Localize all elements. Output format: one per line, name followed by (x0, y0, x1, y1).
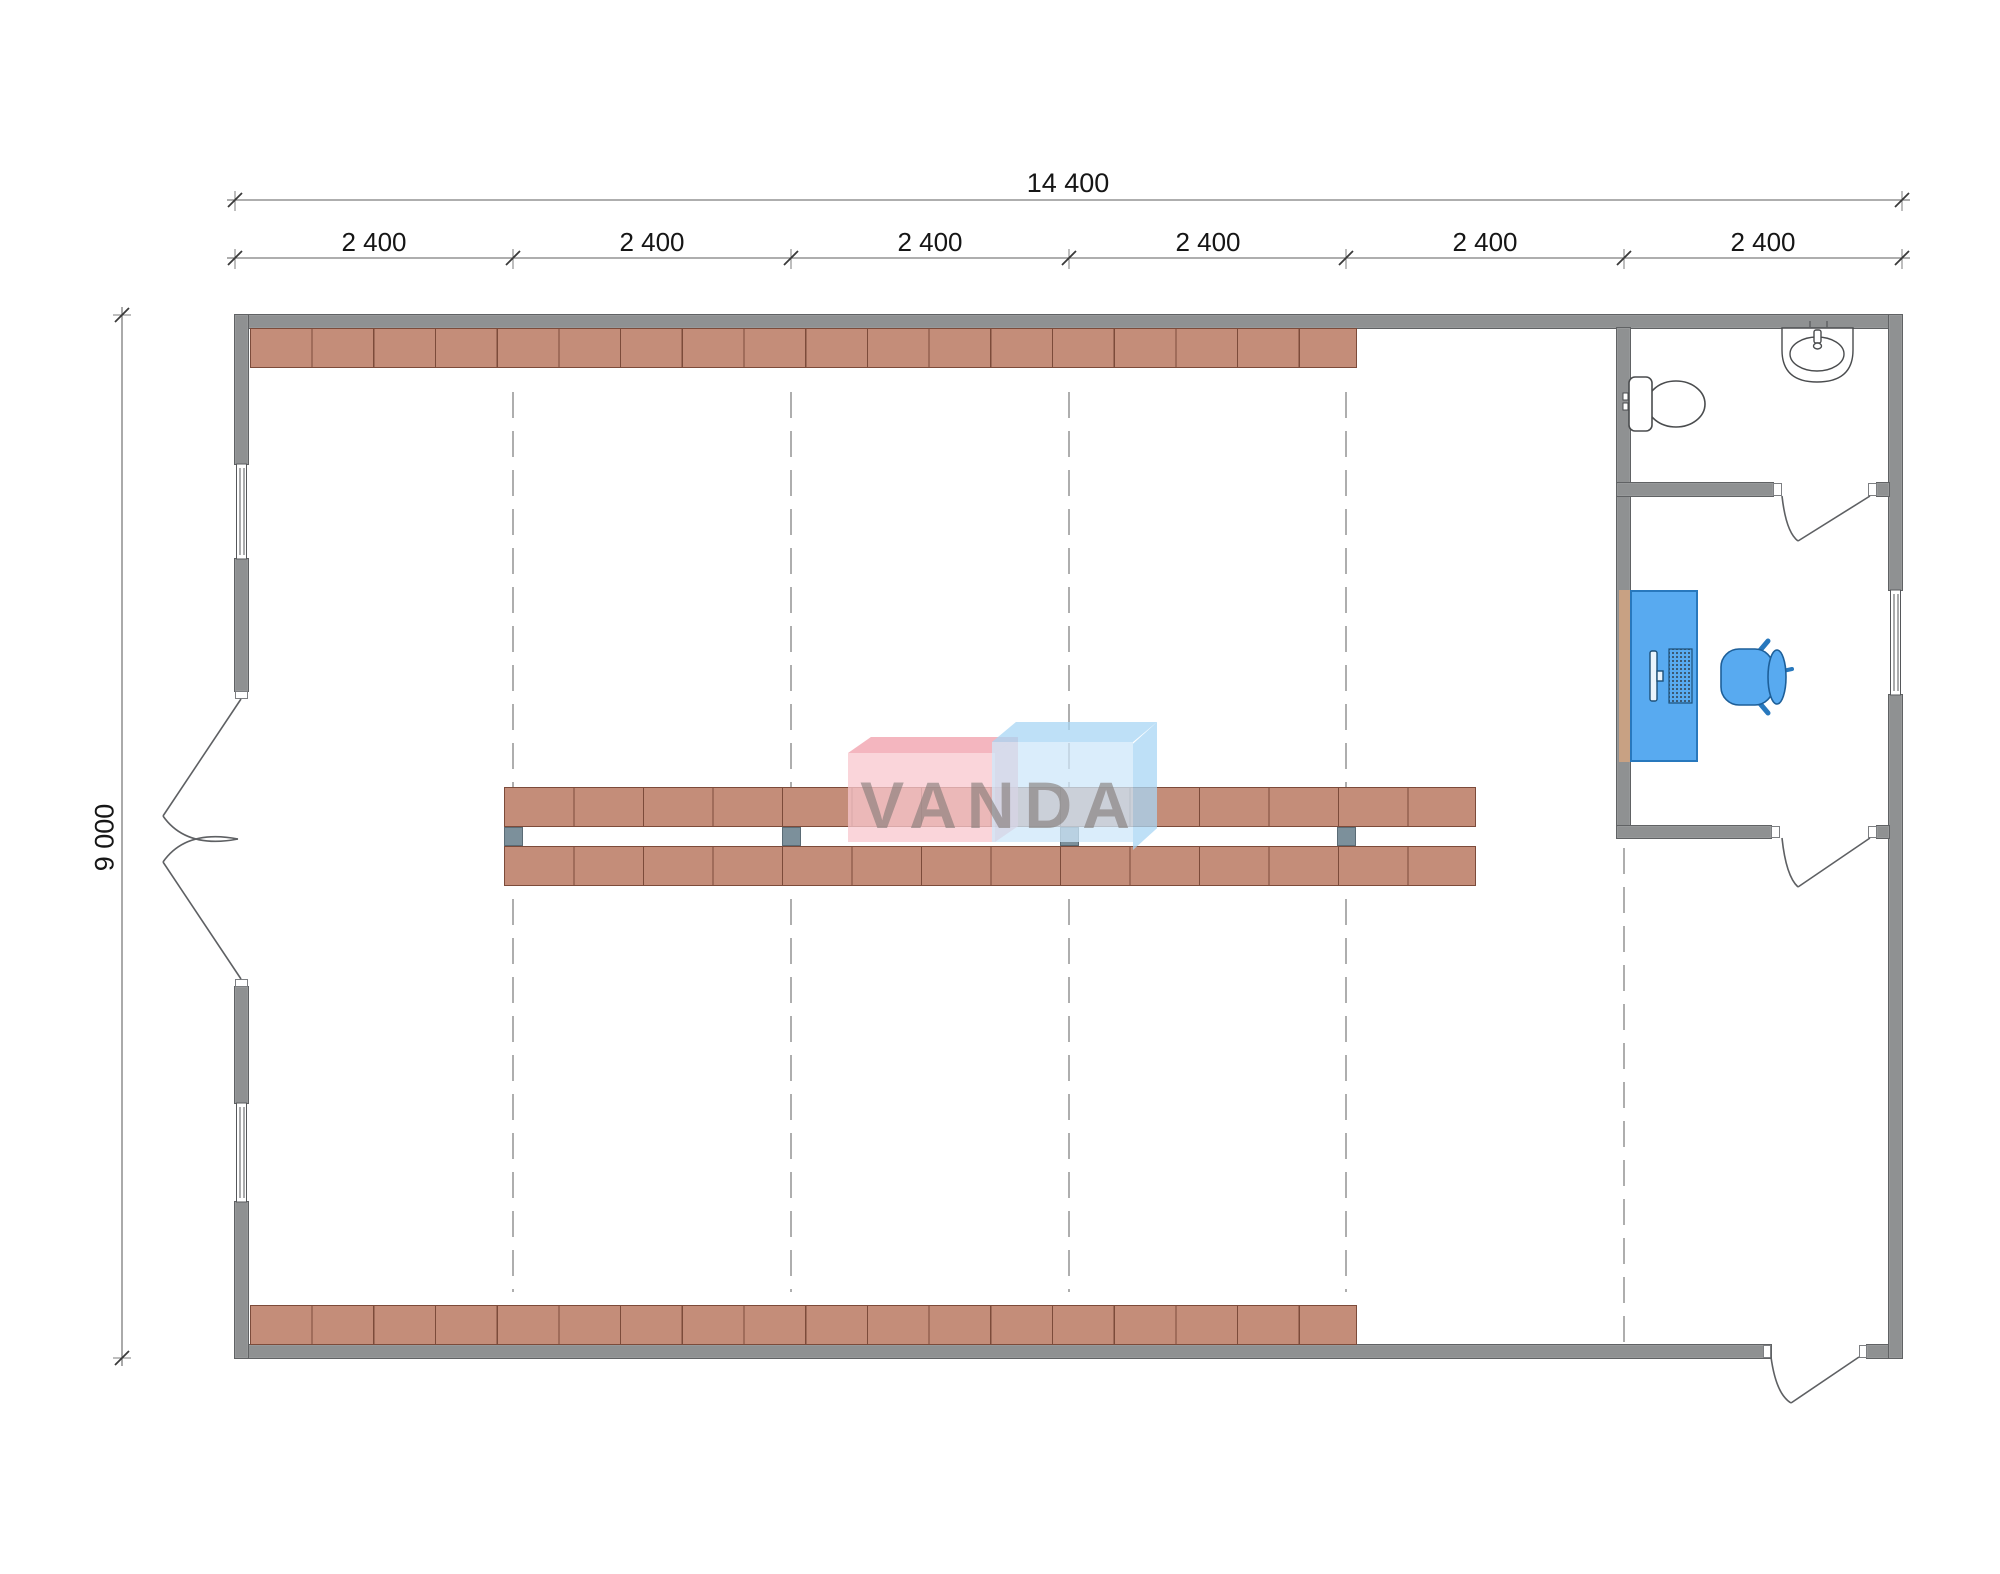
office-desk (1630, 590, 1698, 762)
shelf-post (782, 827, 801, 846)
bay-dimension-4: 2 400 (1128, 227, 1288, 258)
bay-dimension-3: 2 400 (850, 227, 1010, 258)
toilet-door-swing-icon (1782, 496, 1870, 541)
door-jamb (1859, 1345, 1867, 1358)
floor-plan-sheet: 14 400 2 400 2 400 2 400 2 400 2 400 2 4… (0, 0, 2000, 1574)
left-exterior-wall-bottom (235, 1202, 248, 1358)
toilet-icon (1623, 377, 1705, 431)
dimension-tick (115, 193, 1909, 1365)
watermark-box-pink-top (848, 737, 1018, 753)
shelf-post (504, 827, 523, 846)
bay-dimension-2: 2 400 (572, 227, 732, 258)
office-door-swing-icon (1782, 838, 1870, 887)
overall-width-dimension: 14 400 (968, 168, 1168, 199)
bay-dimension-1: 2 400 (294, 227, 454, 258)
shelf-row-center-lower (504, 846, 1476, 886)
watermark-box-blue-top (992, 722, 1157, 742)
bottom-exterior-wall (235, 1345, 1771, 1358)
window-icon (237, 464, 247, 559)
bay-dimension-5: 2 400 (1405, 227, 1565, 258)
left-exterior-wall-lower (235, 987, 248, 1103)
top-exterior-wall (235, 315, 1902, 328)
right-exterior-wall-upper (1889, 315, 1902, 590)
door-jamb (1868, 483, 1877, 496)
door-jamb (1771, 826, 1780, 838)
left-exterior-wall-upper (235, 315, 248, 464)
door-jamb (235, 691, 248, 699)
shelf-row-bottom-wall (250, 1305, 1357, 1345)
shelf-post (1337, 827, 1356, 846)
right-exterior-wall-lower (1889, 695, 1902, 1358)
office-chair-icon (1721, 641, 1792, 713)
sink-icon (1782, 321, 1853, 382)
toilet-room-wall-stub (1877, 483, 1889, 496)
window-icon (237, 1103, 247, 1202)
bay-dimension-6: 2 400 (1683, 227, 1843, 258)
entry-double-door-icon (163, 699, 241, 979)
shelf-row-center-upper (504, 787, 1476, 827)
office-room-wall-stub (1877, 826, 1889, 838)
left-exterior-wall-mid (235, 559, 248, 691)
door-jamb (235, 979, 248, 987)
door-jamb (1868, 826, 1877, 838)
shelf-row-top-wall (250, 328, 1357, 368)
desk-wall-backing (1619, 590, 1630, 762)
shelf-post (1060, 827, 1079, 846)
watermark-box-blue-side (1133, 722, 1157, 850)
door-jamb (1773, 483, 1782, 496)
toilet-room-wall (1617, 483, 1773, 496)
exit-door-swing-icon (1771, 1357, 1859, 1403)
door-jamb (1763, 1345, 1771, 1358)
overall-height-dimension: 9 000 (90, 788, 121, 888)
office-room-wall (1617, 826, 1771, 838)
window-icon (1891, 590, 1901, 695)
